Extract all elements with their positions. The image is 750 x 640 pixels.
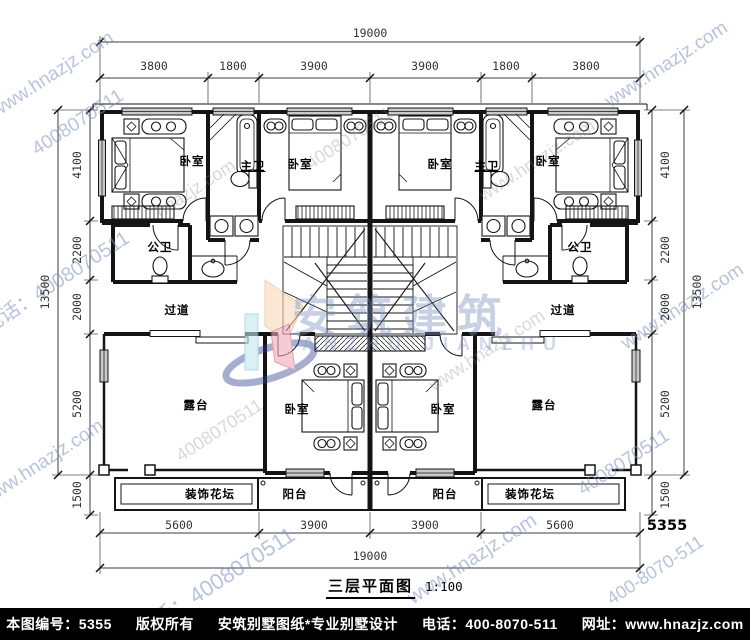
room-label-bedroom-top-right: 卧室 xyxy=(536,153,561,169)
drawing-scale: 1:100 xyxy=(425,579,463,594)
room-label-public-bath-left: 公卫 xyxy=(148,239,173,255)
room-label-flowerbed-right: 装饰花坛 xyxy=(505,486,555,502)
anzhu-logo-latin: ANZHU JIANZHU xyxy=(302,334,565,355)
dim-left-seg: 1500 xyxy=(70,481,84,509)
floorplan-sheet: 安筑建筑 ANZHU JIANZHU www.hnazjz.com 400807… xyxy=(0,0,750,640)
dim-left-seg: 2200 xyxy=(70,236,84,264)
dim-left-seg: 4100 xyxy=(70,151,84,179)
dim-bottom-seg: 5600 xyxy=(165,518,193,532)
room-label-master-bath-right: 主卫 xyxy=(475,158,500,174)
drawing-title-block: 三层平面图 1:100 xyxy=(326,575,463,599)
dim-left-seg: 2000 xyxy=(70,293,84,321)
room-label-balcony-right: 阳台 xyxy=(433,486,458,502)
room-label-bedroom-bottom-right: 卧室 xyxy=(431,401,456,417)
dim-right-seg: 1500 xyxy=(658,481,672,509)
room-label-flowerbed-left: 装饰花坛 xyxy=(185,486,235,502)
room-label-corridor-right: 过道 xyxy=(551,302,576,318)
room-label-terrace-right: 露台 xyxy=(532,397,557,413)
footer-sheet-number: 本图编号：5355 xyxy=(6,614,112,634)
dim-top-seg: 3800 xyxy=(140,59,168,73)
dim-top-seg: 1800 xyxy=(219,59,247,73)
dim-right-total: 13500 xyxy=(690,275,704,310)
sheet-number: 5355 xyxy=(647,518,687,534)
dim-bottom-seg: 3900 xyxy=(411,518,439,532)
dim-bottom-seg: 3900 xyxy=(300,518,328,532)
room-label-bedroom-top-mid-right: 卧室 xyxy=(428,156,453,172)
dim-right-seg: 5200 xyxy=(658,390,672,418)
dim-right-seg: 2000 xyxy=(658,293,672,321)
room-label-balcony-left: 阳台 xyxy=(283,486,308,502)
dim-top-seg: 3900 xyxy=(300,59,328,73)
dim-top-seg: 3900 xyxy=(411,59,439,73)
dim-bottom-total: 19000 xyxy=(353,549,388,563)
room-label-corridor-left: 过道 xyxy=(165,302,190,318)
dim-left-seg: 5200 xyxy=(70,390,84,418)
footer-website: 网址：www.hnazjz.com xyxy=(582,614,744,634)
drawing-title: 三层平面图 xyxy=(326,575,415,599)
room-label-terrace-left: 露台 xyxy=(184,397,209,413)
dim-right-seg: 4100 xyxy=(658,151,672,179)
dim-top-seg: 1800 xyxy=(492,59,520,73)
room-label-master-bath-left: 主卫 xyxy=(241,158,266,174)
footer-copyright: 版权所有 xyxy=(136,614,194,634)
dim-left-total: 13500 xyxy=(38,275,52,310)
footer-bar: 本图编号：5355 版权所有 安筑别墅图纸*专业别墅设计 电话：400-8070… xyxy=(0,608,750,640)
room-label-bedroom-top-mid-left: 卧室 xyxy=(288,156,313,172)
room-label-bedroom-top-left: 卧室 xyxy=(180,153,205,169)
room-label-bedroom-bottom-left: 卧室 xyxy=(285,401,310,417)
dim-top-seg: 3800 xyxy=(572,59,600,73)
footer-phone: 电话：400-8070-511 xyxy=(422,614,558,634)
dim-right-seg: 2200 xyxy=(658,236,672,264)
dim-top-total: 19000 xyxy=(353,26,388,40)
dim-bottom-seg: 5600 xyxy=(546,518,574,532)
footer-company: 安筑别墅图纸*专业别墅设计 xyxy=(218,614,398,634)
room-label-public-bath-right: 公卫 xyxy=(568,239,593,255)
